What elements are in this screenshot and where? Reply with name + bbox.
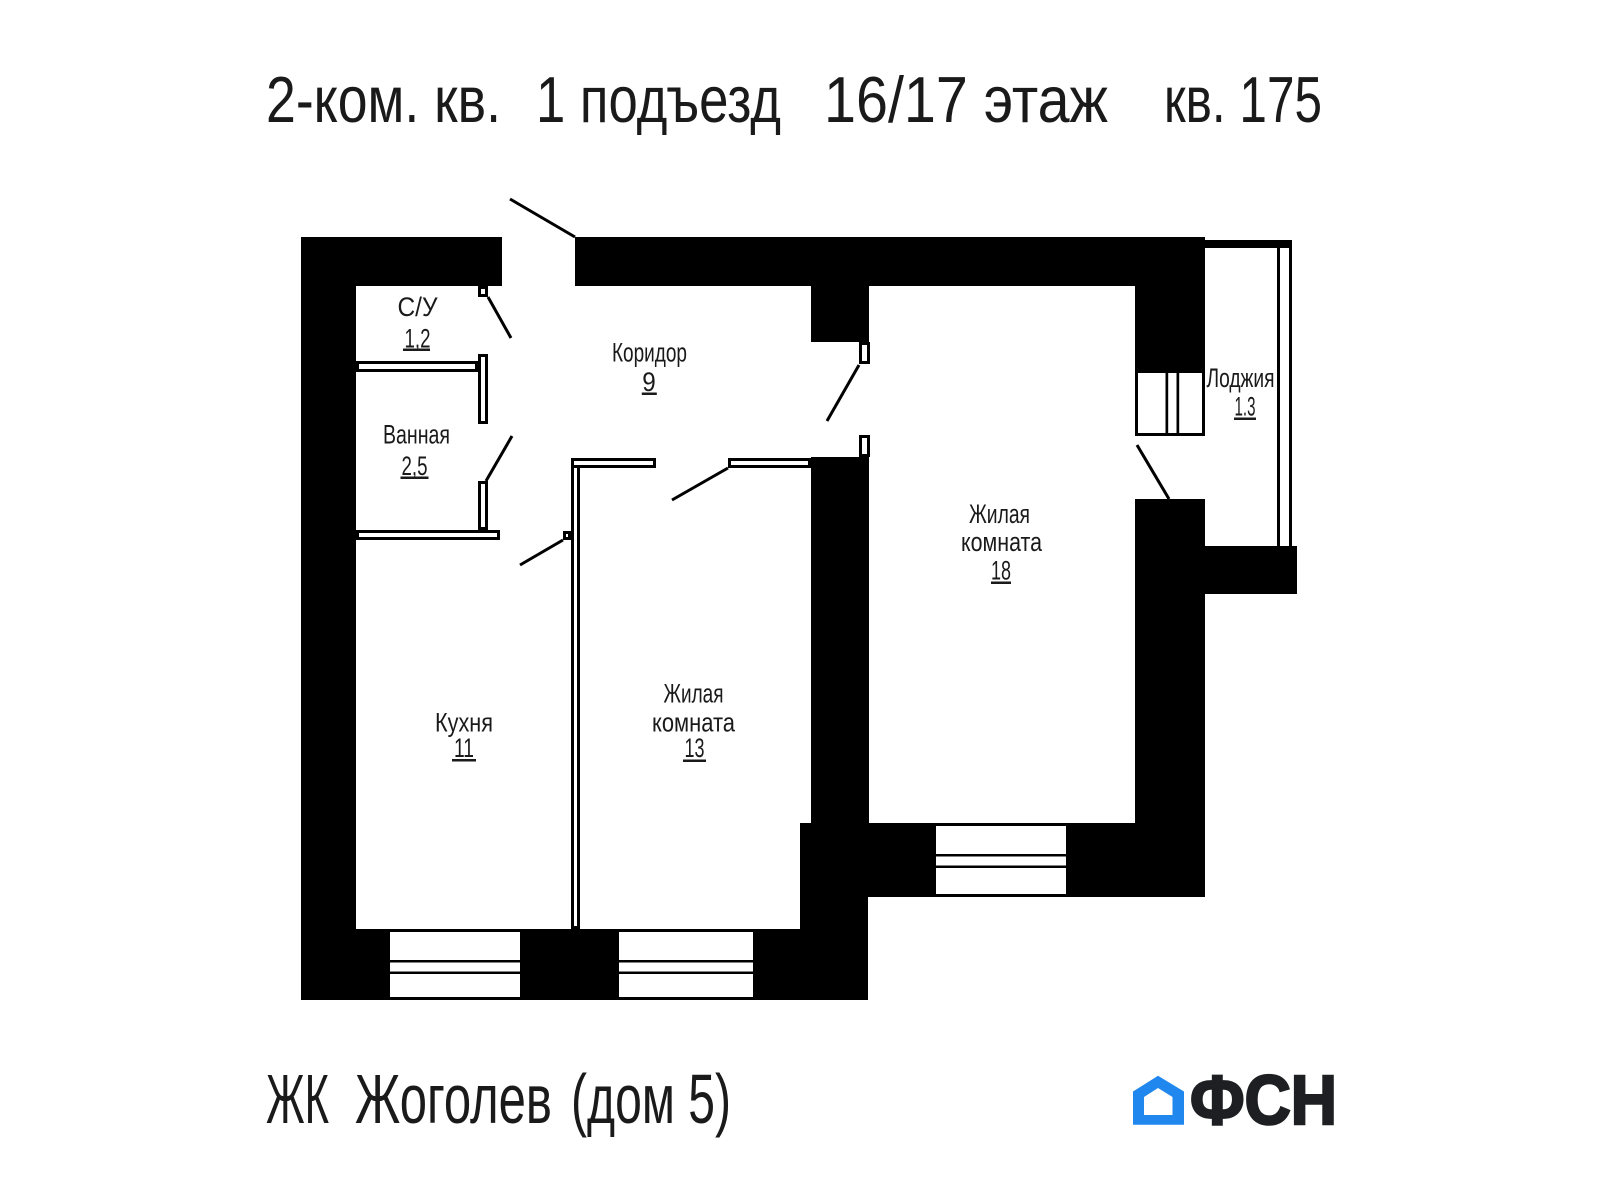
- svg-text:Жилая: Жилая: [664, 679, 724, 709]
- svg-text:16/17 этаж: 16/17 этаж: [824, 63, 1108, 136]
- svg-text:ЖК: ЖК: [266, 1060, 329, 1138]
- svg-text:ФСН: ФСН: [1190, 1061, 1337, 1139]
- svg-text:(дом 5): (дом 5): [571, 1060, 731, 1138]
- svg-text:Ванная: Ванная: [383, 420, 450, 450]
- svg-text:11: 11: [454, 733, 474, 763]
- svg-text:Коридор: Коридор: [612, 338, 687, 368]
- svg-text:Жилая: Жилая: [969, 499, 1030, 529]
- svg-text:кв. 175: кв. 175: [1164, 63, 1322, 136]
- svg-text:1.3: 1.3: [1235, 391, 1256, 421]
- svg-text:комната: комната: [961, 527, 1043, 557]
- svg-text:Лоджия: Лоджия: [1207, 363, 1275, 393]
- svg-text:Жоголев: Жоголев: [355, 1060, 552, 1138]
- svg-text:С/У: С/У: [398, 292, 439, 322]
- svg-text:2-ком. кв.: 2-ком. кв.: [266, 63, 501, 136]
- svg-text:1 подъезд: 1 подъезд: [536, 63, 781, 136]
- svg-text:18: 18: [991, 556, 1011, 586]
- svg-text:13: 13: [685, 733, 705, 763]
